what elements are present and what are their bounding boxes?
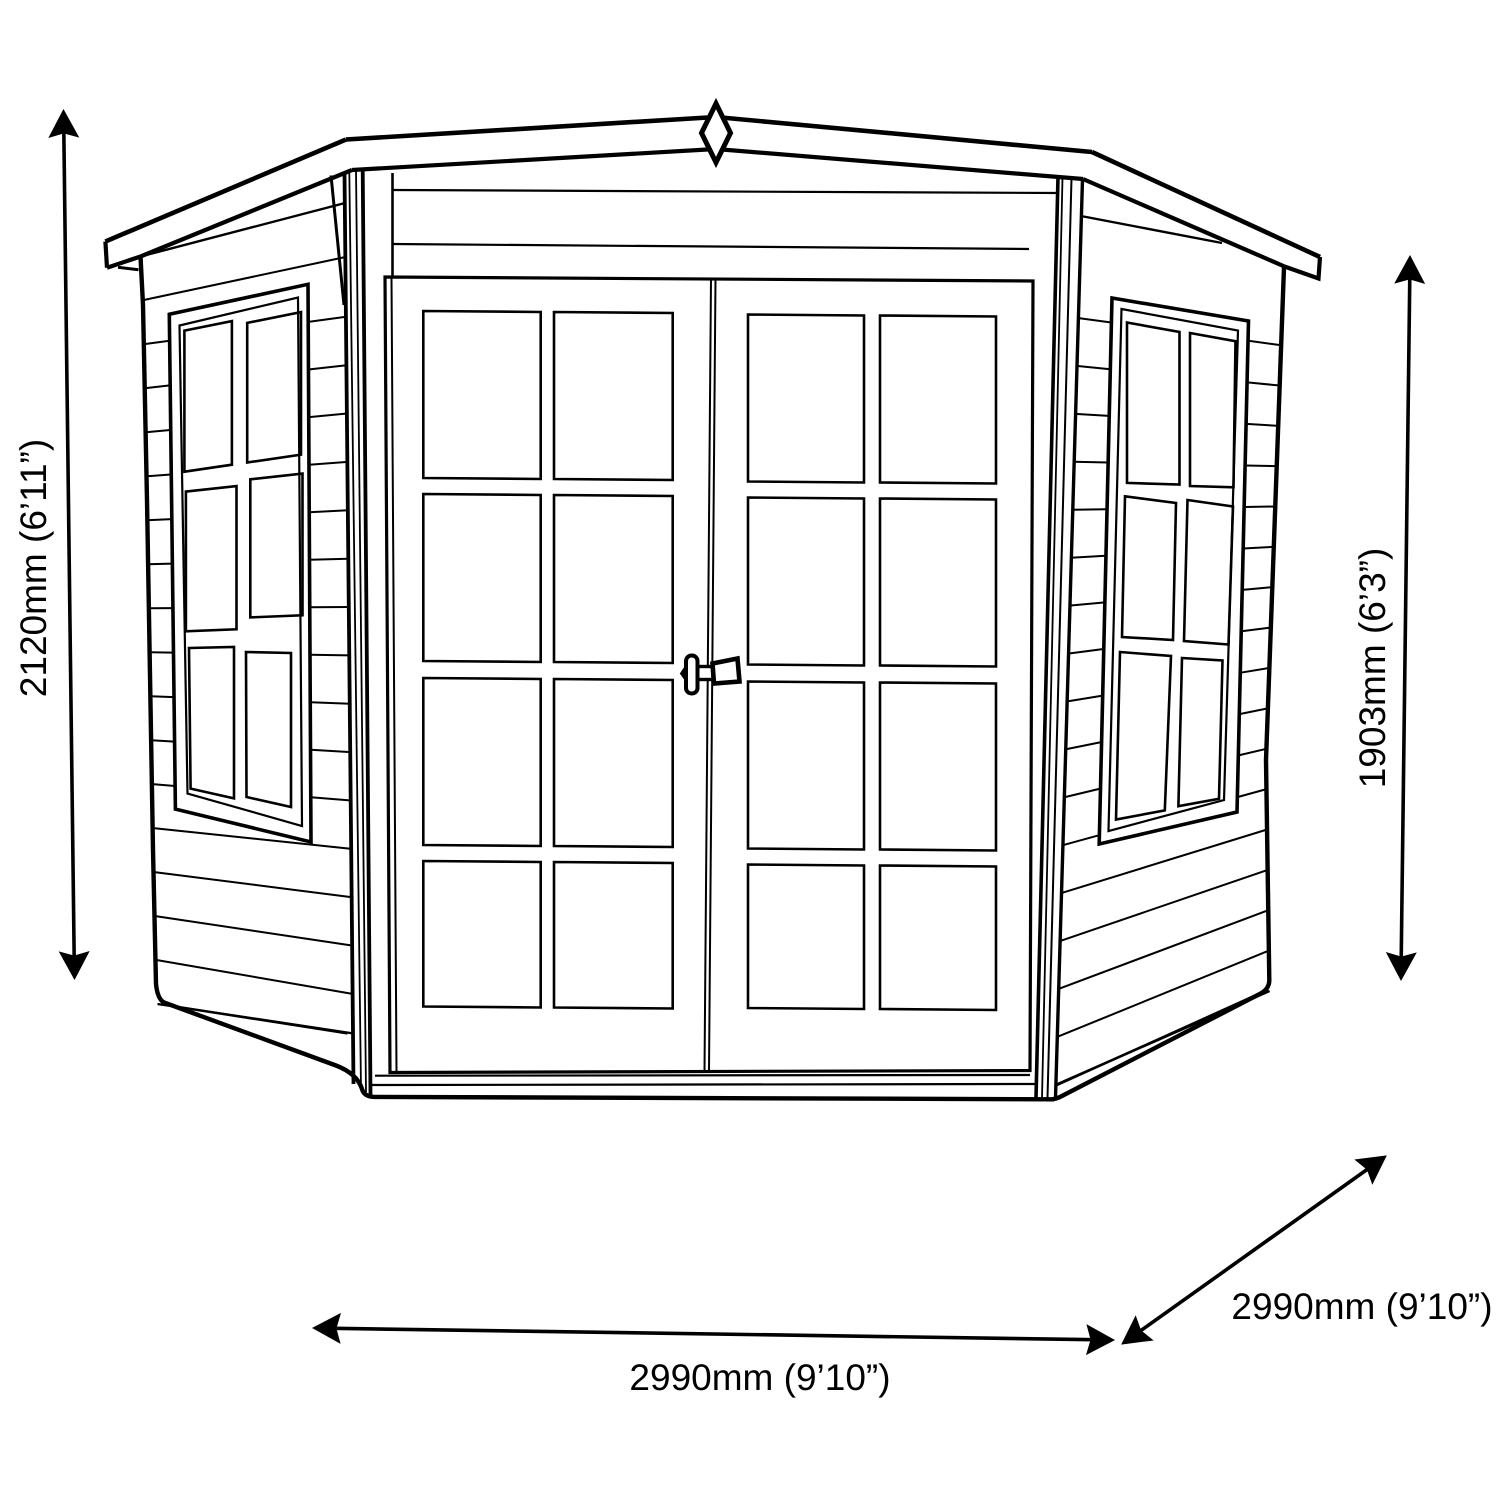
svg-text:2990mm (9’10”): 2990mm (9’10”) bbox=[1231, 1286, 1492, 1327]
svg-text:1903mm (6’3”): 1903mm (6’3”) bbox=[1352, 548, 1393, 789]
svg-text:2990mm (9’10”): 2990mm (9’10”) bbox=[629, 1357, 890, 1398]
svg-text:2120mm (6’11”): 2120mm (6’11”) bbox=[13, 439, 54, 697]
